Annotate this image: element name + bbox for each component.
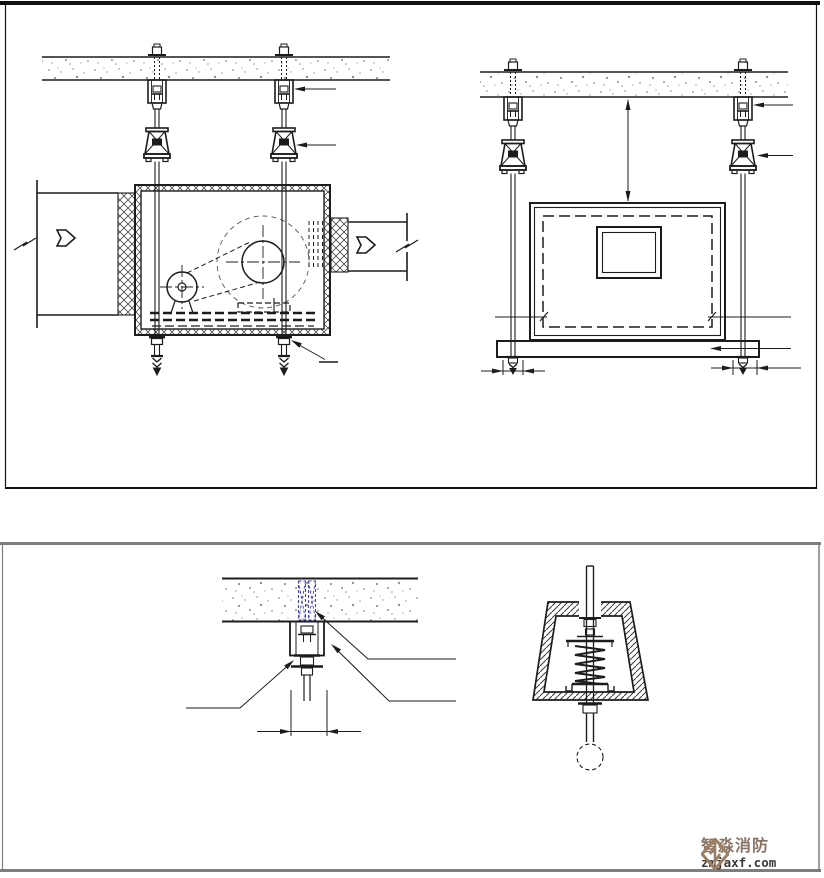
- leader-lines: [186, 611, 456, 708]
- vibration-isolator: [271, 128, 297, 162]
- rod-bottom-and-nut: [577, 704, 603, 771]
- panel-elevations: [0, 0, 824, 492]
- ceiling-slab: [480, 72, 788, 97]
- pipe-break-icon: [14, 238, 36, 250]
- rod-position-circle: [577, 744, 603, 770]
- watermark-logo: 智淼消防 zmjaxf.com: [701, 839, 776, 869]
- rod-clearance-dimensions: [481, 360, 801, 375]
- hanger-bracket: [734, 97, 752, 126]
- spring-isolator-detail: [533, 566, 648, 770]
- fan-unit-casing: [495, 203, 791, 340]
- rod-end-nut: [736, 357, 750, 374]
- hanger-bracket: [290, 622, 324, 656]
- vibration-isolator: [500, 140, 526, 174]
- cad-drawing-sheet: 智淼消防 zmjaxf.com: [0, 0, 824, 878]
- leader-lines: [753, 103, 793, 159]
- airflow-arrow-icon: [357, 237, 375, 253]
- hanger-bracket: [275, 80, 293, 109]
- bolt-spacing-dimension: [257, 690, 361, 736]
- rod-end-nut: [276, 337, 292, 375]
- hanger-rod-top: [587, 566, 594, 603]
- side-view: [14, 44, 418, 375]
- rod-end-nut: [149, 337, 165, 375]
- outlet-duct: [348, 213, 418, 281]
- inlet-duct: [14, 180, 118, 328]
- hanger-left: [500, 59, 526, 374]
- front-view: [480, 59, 801, 375]
- hanging-height-dimension: [626, 99, 631, 202]
- nut-and-washer-stack: [291, 656, 323, 702]
- ceiling-slab: [42, 57, 390, 80]
- vibration-isolator: [730, 140, 756, 174]
- spring-coil: [575, 646, 605, 684]
- airflow-arrow-icon: [57, 230, 75, 246]
- diamond-fold-icon: [701, 838, 729, 870]
- flexible-connector-left: [118, 193, 135, 315]
- panel-details: [0, 540, 824, 878]
- anchor-bolt-detail: [186, 579, 456, 737]
- hanger-bracket: [148, 80, 166, 109]
- flexible-connector-right: [331, 218, 348, 272]
- pipe-break-icon: [396, 240, 418, 252]
- support-beam: [497, 341, 791, 357]
- access-panel: [597, 227, 661, 278]
- hanger-bracket: [504, 97, 522, 126]
- hanger-right: [730, 59, 756, 374]
- vibration-isolator: [144, 128, 170, 162]
